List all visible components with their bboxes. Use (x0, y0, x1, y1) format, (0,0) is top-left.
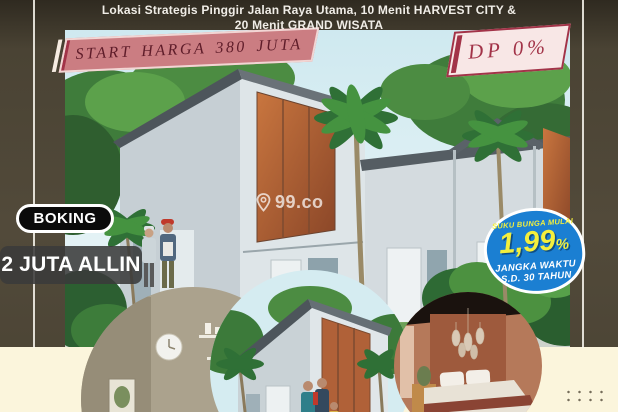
booking-fee-badge: 2 JUTA ALLIN (0, 246, 142, 284)
window-light (400, 326, 414, 398)
header-location-text: Lokasi Strategis Pinggir Jalan Raya Utam… (0, 3, 618, 32)
dot-grid-right (563, 388, 603, 403)
watermark-99co: 99.co (256, 192, 324, 213)
location-pin-icon (256, 193, 271, 212)
frame-line-right (582, 0, 584, 348)
rate-value: 1,99% (498, 226, 570, 264)
header-line-2: 20 Menit GRAND WISATA (0, 18, 618, 33)
plant (417, 366, 431, 386)
rate-number: 1,99 (498, 225, 557, 261)
rate-percent-sign: % (555, 236, 569, 254)
watermark-text: 99.co (275, 192, 324, 213)
booking-badge: BOKING (16, 204, 114, 233)
frame-line-left (33, 0, 35, 348)
red-backpack (313, 392, 318, 405)
front-door (266, 386, 290, 412)
property-ad-flyer: Lokasi Strategis Pinggir Jalan Raya Utam… (0, 0, 618, 412)
header-line-1: Lokasi Strategis Pinggir Jalan Raya Utam… (0, 3, 618, 18)
